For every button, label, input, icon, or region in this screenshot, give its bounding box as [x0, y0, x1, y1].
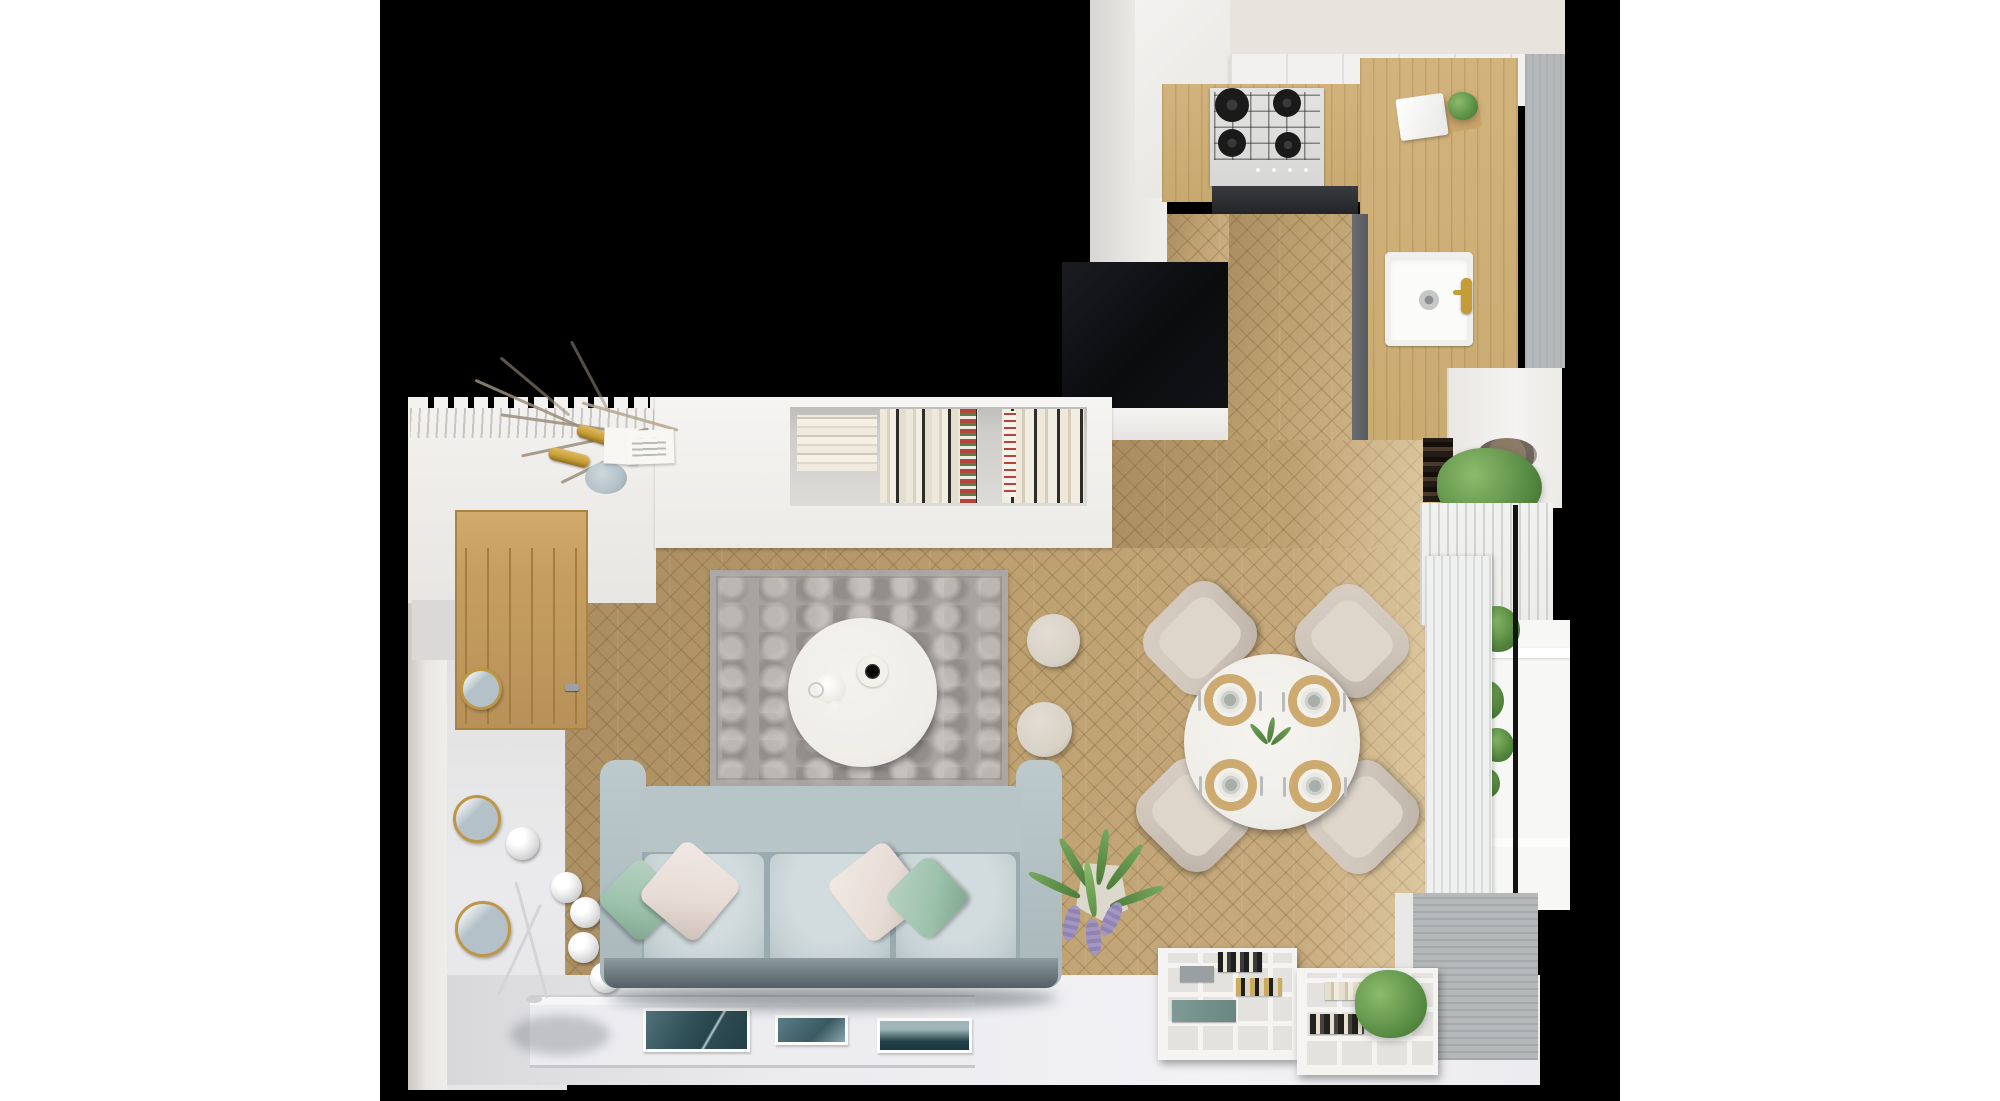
cream-pouffe [1017, 702, 1072, 757]
hob-knobs [1252, 166, 1312, 174]
gold-faucet [1461, 278, 1472, 314]
page [0, 0, 2000, 1101]
lavender-sprig [1084, 918, 1103, 955]
place-setting [1288, 675, 1340, 727]
kitchen-back-wall [1230, 0, 1565, 58]
kitchen-sink [1385, 252, 1473, 346]
lamp-sphere [506, 827, 539, 860]
burner [1218, 129, 1246, 157]
saucer [857, 656, 888, 687]
place-setting [1205, 759, 1257, 811]
lamp-sphere [568, 932, 599, 963]
shelf-item-teal [1172, 1000, 1236, 1022]
sofa-front-shadow [604, 958, 1058, 988]
door-handle [565, 684, 579, 691]
kitchen-passage-floor [1227, 214, 1352, 444]
window-black-frame [1513, 505, 1518, 910]
shelf-item-box [1180, 966, 1214, 982]
shelving-plant [1355, 970, 1427, 1038]
lamp-base [526, 995, 542, 1003]
cream-pouffe [1027, 614, 1080, 667]
round-gold-mirror [460, 668, 502, 710]
burner [1273, 89, 1301, 117]
place-setting [1289, 760, 1341, 812]
kitchen-passage-floor-notch [1167, 214, 1229, 264]
dried-branch-arrangement [460, 345, 680, 505]
burner [1275, 132, 1301, 158]
white-teapot [815, 673, 846, 704]
sofa [600, 758, 1062, 992]
kitchen-plant [1448, 92, 1478, 120]
sink-drain [1419, 290, 1439, 310]
lamp-shadow [510, 1015, 610, 1055]
teal-print-frame [643, 1008, 750, 1052]
book-row-2 [1002, 409, 1084, 503]
shelf-books [1218, 952, 1262, 972]
shelf-books [1310, 1014, 1364, 1034]
stacked-books [797, 415, 877, 471]
teal-print-frame [775, 1015, 848, 1045]
kitchen-gray-blind [1525, 54, 1565, 368]
shelf-books [1236, 978, 1282, 996]
apartment-render [380, 0, 1620, 1101]
lamp-sphere [570, 897, 601, 928]
coffee-cup [865, 664, 880, 679]
round-gold-mirror [453, 795, 501, 843]
leaning-art-frame-sketch [625, 429, 674, 465]
round-dining-table [1184, 654, 1360, 830]
twig [570, 340, 610, 412]
table-centerpiece [1248, 717, 1294, 759]
lavender-sprig [1060, 904, 1083, 943]
floor-plant-with-lavender [1040, 835, 1170, 980]
teal-print-frame [877, 1018, 972, 1053]
round-gold-mirror [455, 901, 511, 957]
book-row-1 [880, 409, 978, 503]
gas-hob [1210, 88, 1324, 186]
burner [1215, 88, 1249, 122]
blue-vase [585, 462, 627, 494]
white-ribbed-radiator [1425, 556, 1492, 905]
sugar-bowl [830, 701, 839, 710]
counter-dark-front [1212, 186, 1358, 214]
black-gloss-cabinet [1062, 262, 1228, 409]
kitchen-towel [1395, 93, 1448, 141]
